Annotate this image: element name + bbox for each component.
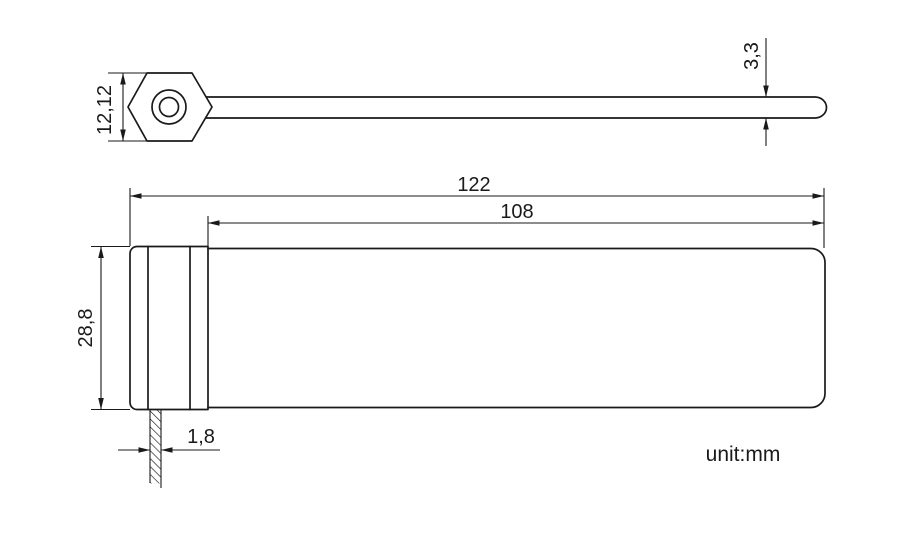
dim-strap-thickness-arrow-up xyxy=(763,118,769,130)
dim-tail-thickness-text: 1,8 xyxy=(187,426,215,448)
dim-tail-arrow-right xyxy=(139,447,151,453)
strap-body-outline xyxy=(208,249,825,408)
dim-tail-arrow-left xyxy=(161,447,173,453)
dim-head-height-arrow-bottom xyxy=(120,130,126,142)
hex-head-outline xyxy=(128,73,212,141)
seal-dimension-drawing: 12,12 3,3 xyxy=(0,0,912,544)
dim-overall-arrow-left xyxy=(130,193,142,199)
dim-strap-length: 108 xyxy=(208,201,824,246)
dim-body-width-arrow-top xyxy=(98,247,104,259)
dim-head-height-arrow-top xyxy=(120,73,126,85)
tail-hatch-fill xyxy=(150,410,161,484)
side-view xyxy=(128,73,827,141)
dim-tail-thickness: 1,8 xyxy=(118,426,220,453)
head-hole-outer-circle xyxy=(152,90,186,124)
head-block-outline xyxy=(130,247,208,410)
head-hole-inner-circle xyxy=(160,98,179,117)
dim-body-width-text: 28,8 xyxy=(75,309,97,348)
dim-strap-thickness: 3,3 xyxy=(741,38,769,146)
dim-strap-thickness-text: 3,3 xyxy=(741,42,763,70)
dim-head-height-text: 12,12 xyxy=(94,85,116,135)
unit-note: unit:mm xyxy=(706,443,781,466)
dim-strap-length-arrow-left xyxy=(208,220,220,226)
dim-overall-arrow-right xyxy=(813,193,825,199)
dim-body-width: 28,8 xyxy=(75,247,130,410)
dim-overall-length-text: 122 xyxy=(457,174,490,196)
technical-drawing-page: 12,12 3,3 xyxy=(0,0,912,544)
dim-strap-length-arrow-right xyxy=(813,220,825,226)
dim-strap-thickness-arrow-down xyxy=(763,86,769,98)
dim-overall-length: 122 xyxy=(130,174,824,248)
strap-profile xyxy=(206,97,827,118)
dim-body-width-arrow-bottom xyxy=(98,398,104,410)
dim-strap-length-text: 108 xyxy=(500,201,533,223)
